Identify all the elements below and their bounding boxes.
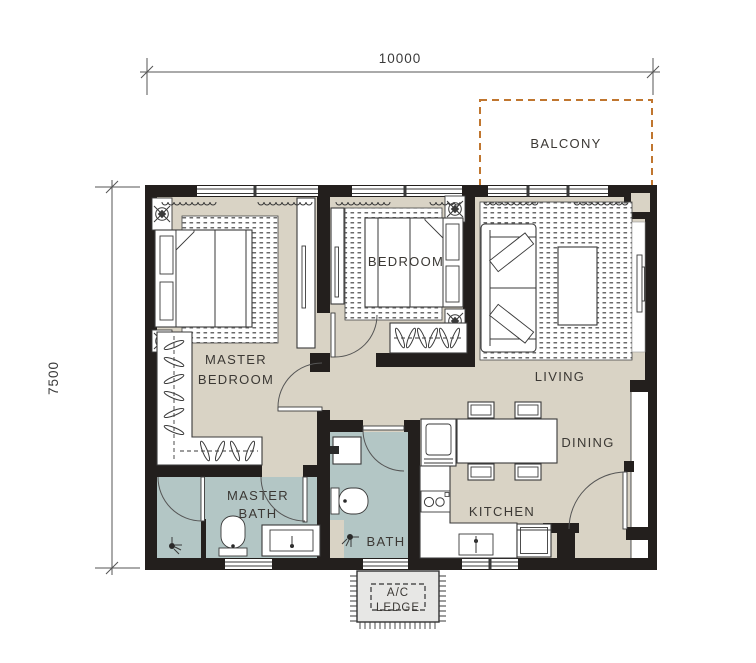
window-master-bath <box>225 559 272 569</box>
room-label-ac-1: A/C <box>387 587 409 599</box>
dimension-height: 7500 <box>46 180 140 575</box>
coffee-table <box>558 247 597 325</box>
pillow <box>446 266 459 302</box>
room-label-master-bedroom-1: MASTER <box>205 352 267 367</box>
counter-appliance <box>421 419 456 466</box>
toilet <box>219 516 247 556</box>
dimension-width-label: 10000 <box>379 51 422 66</box>
bath-pillar <box>330 520 344 558</box>
kitchen-sink <box>459 534 493 555</box>
pillow <box>446 224 459 260</box>
ac-ledge: A/C LEDGE <box>350 571 446 629</box>
wardrobe-hangers <box>390 323 467 353</box>
room-label-kitchen: KITCHEN <box>469 504 535 519</box>
room-label-dining: DINING <box>561 435 614 450</box>
room-label-living: LIVING <box>535 369 585 384</box>
toilet <box>331 488 368 514</box>
pillow <box>160 236 173 274</box>
floor-plan-drawing: 10000 7500 BALCONY <box>0 0 756 663</box>
wash-basin <box>330 437 361 464</box>
room-label-bedroom: BEDROOM <box>368 254 444 269</box>
room-label-balcony: BALCONY <box>530 136 601 151</box>
room-label-master-bath-2: BATH <box>239 506 278 521</box>
window-master-bedroom <box>197 186 318 197</box>
window-bath <box>363 559 408 569</box>
double-bed <box>155 230 252 327</box>
sofa <box>481 224 536 352</box>
dining-table <box>457 419 557 463</box>
cooktop <box>421 491 450 512</box>
window-bedroom <box>352 186 462 197</box>
room-label-ac-2: LEDGE <box>376 602 420 614</box>
window-living <box>488 186 608 197</box>
window-kitchen <box>462 559 518 570</box>
room-label-bath: BATH <box>367 534 406 549</box>
vanity-sink <box>262 525 320 556</box>
wardrobe-panel <box>297 198 315 348</box>
room-label-master-bedroom-2: BEDROOM <box>198 372 274 387</box>
dimension-height-label: 7500 <box>46 361 61 395</box>
pillow <box>160 282 173 320</box>
dimension-width: 10000 <box>140 51 660 95</box>
washing-machine <box>517 524 551 557</box>
column-inset <box>631 193 650 212</box>
room-label-master-bath-1: MASTER <box>227 488 289 503</box>
floor-plan: 10000 7500 BALCONY <box>0 0 756 663</box>
